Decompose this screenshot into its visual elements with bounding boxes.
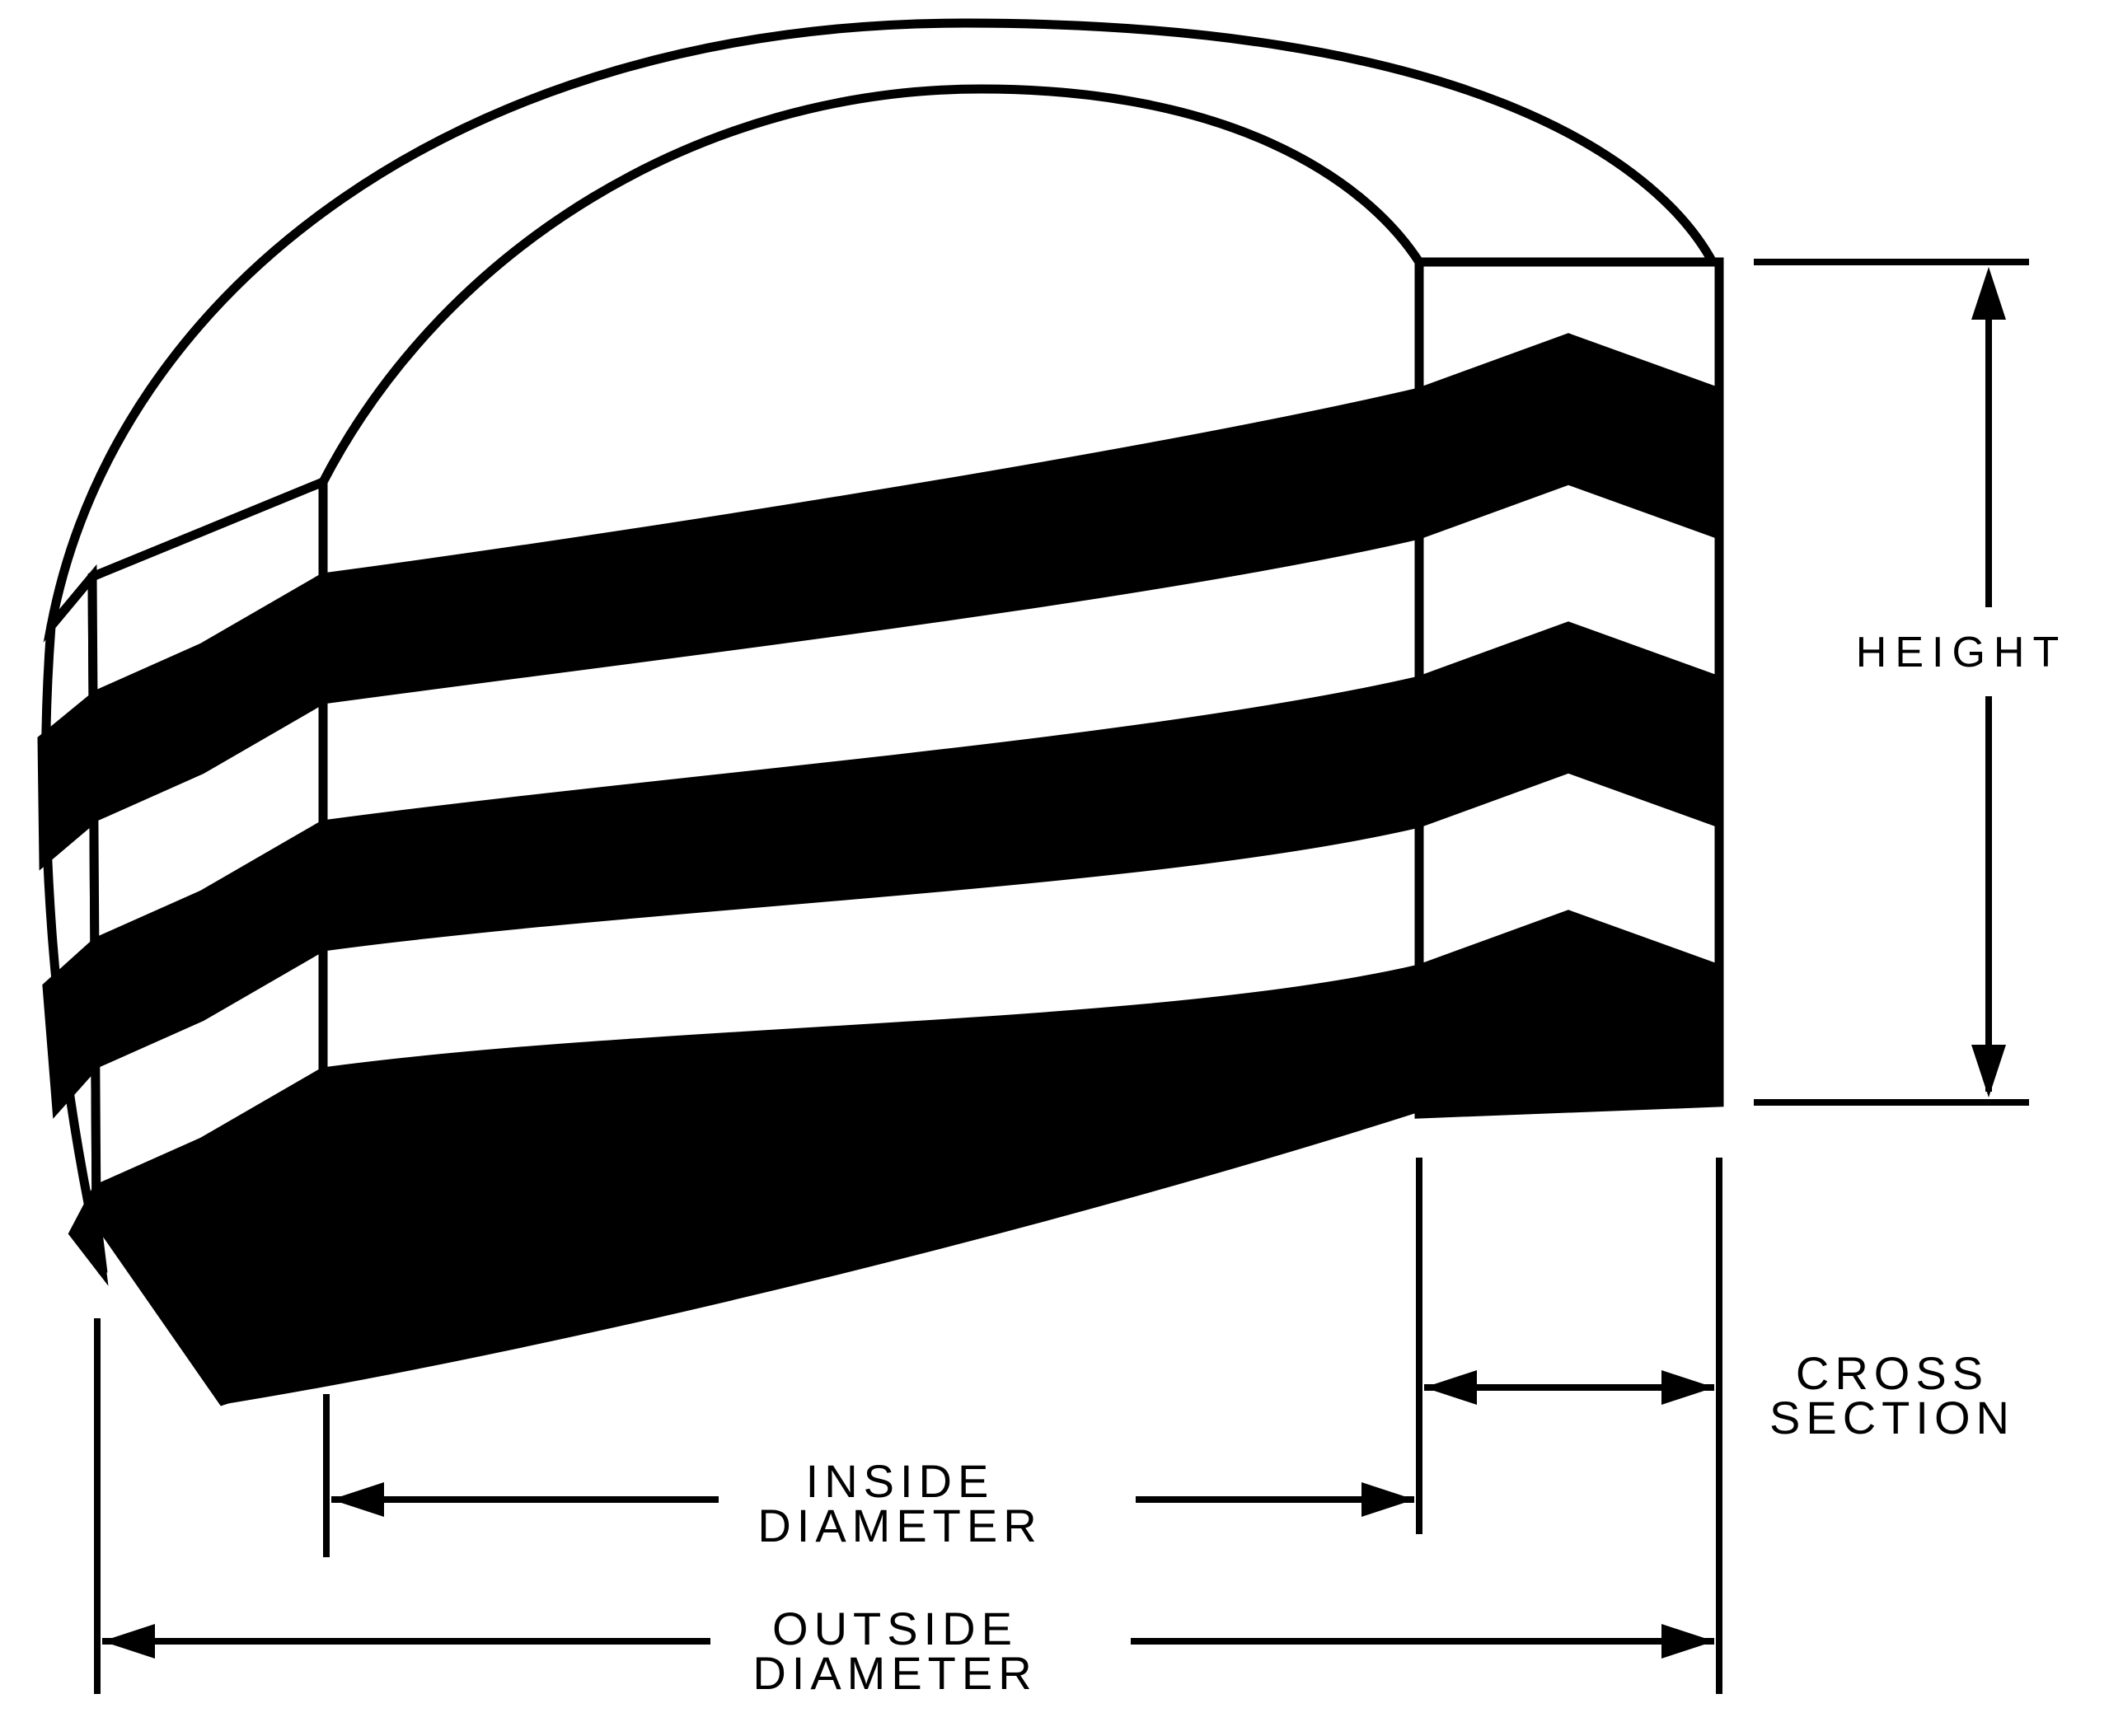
height-label: HEIGHT (1856, 629, 2067, 676)
diagram-page: HEIGHT CROSS SECTION INSIDE DIAMETER (0, 0, 2123, 1736)
inside-diameter-dimension: INSIDE DIAMETER (326, 1394, 1414, 1557)
right-cut-face-column (1419, 262, 1719, 1114)
inside-diameter-label-line2: DIAMETER (757, 1500, 1042, 1551)
outer-black-band-3 (223, 968, 1419, 1401)
inside-diameter-arrow-right-icon (1361, 1482, 1414, 1517)
cross-section-label-line2: SECTION (1769, 1392, 2015, 1444)
ring-figure (41, 23, 1719, 1401)
cross-section-arrow-right-icon (1661, 1370, 1714, 1405)
cross-section-arrow-left-icon (1424, 1370, 1477, 1405)
outside-diameter-arrow-right-icon (1661, 1624, 1714, 1659)
outside-diameter-label-line2: DIAMETER (752, 1647, 1037, 1699)
height-dimension: HEIGHT (1754, 262, 2067, 1102)
outer-black-band-1 (323, 391, 1419, 700)
cross-section-dimension: CROSS SECTION (1419, 1158, 2015, 1694)
height-arrow-down-icon (1971, 1045, 2006, 1097)
outside-diameter-arrow-left-icon (102, 1624, 155, 1659)
chevron-packing-cutaway-diagram: HEIGHT CROSS SECTION INSIDE DIAMETER (0, 0, 2123, 1736)
outer-black-band-2 (323, 680, 1419, 948)
inside-diameter-arrow-left-icon (331, 1482, 384, 1517)
outer-surface-bands (223, 391, 1419, 1401)
height-arrow-up-icon (1971, 267, 2006, 320)
